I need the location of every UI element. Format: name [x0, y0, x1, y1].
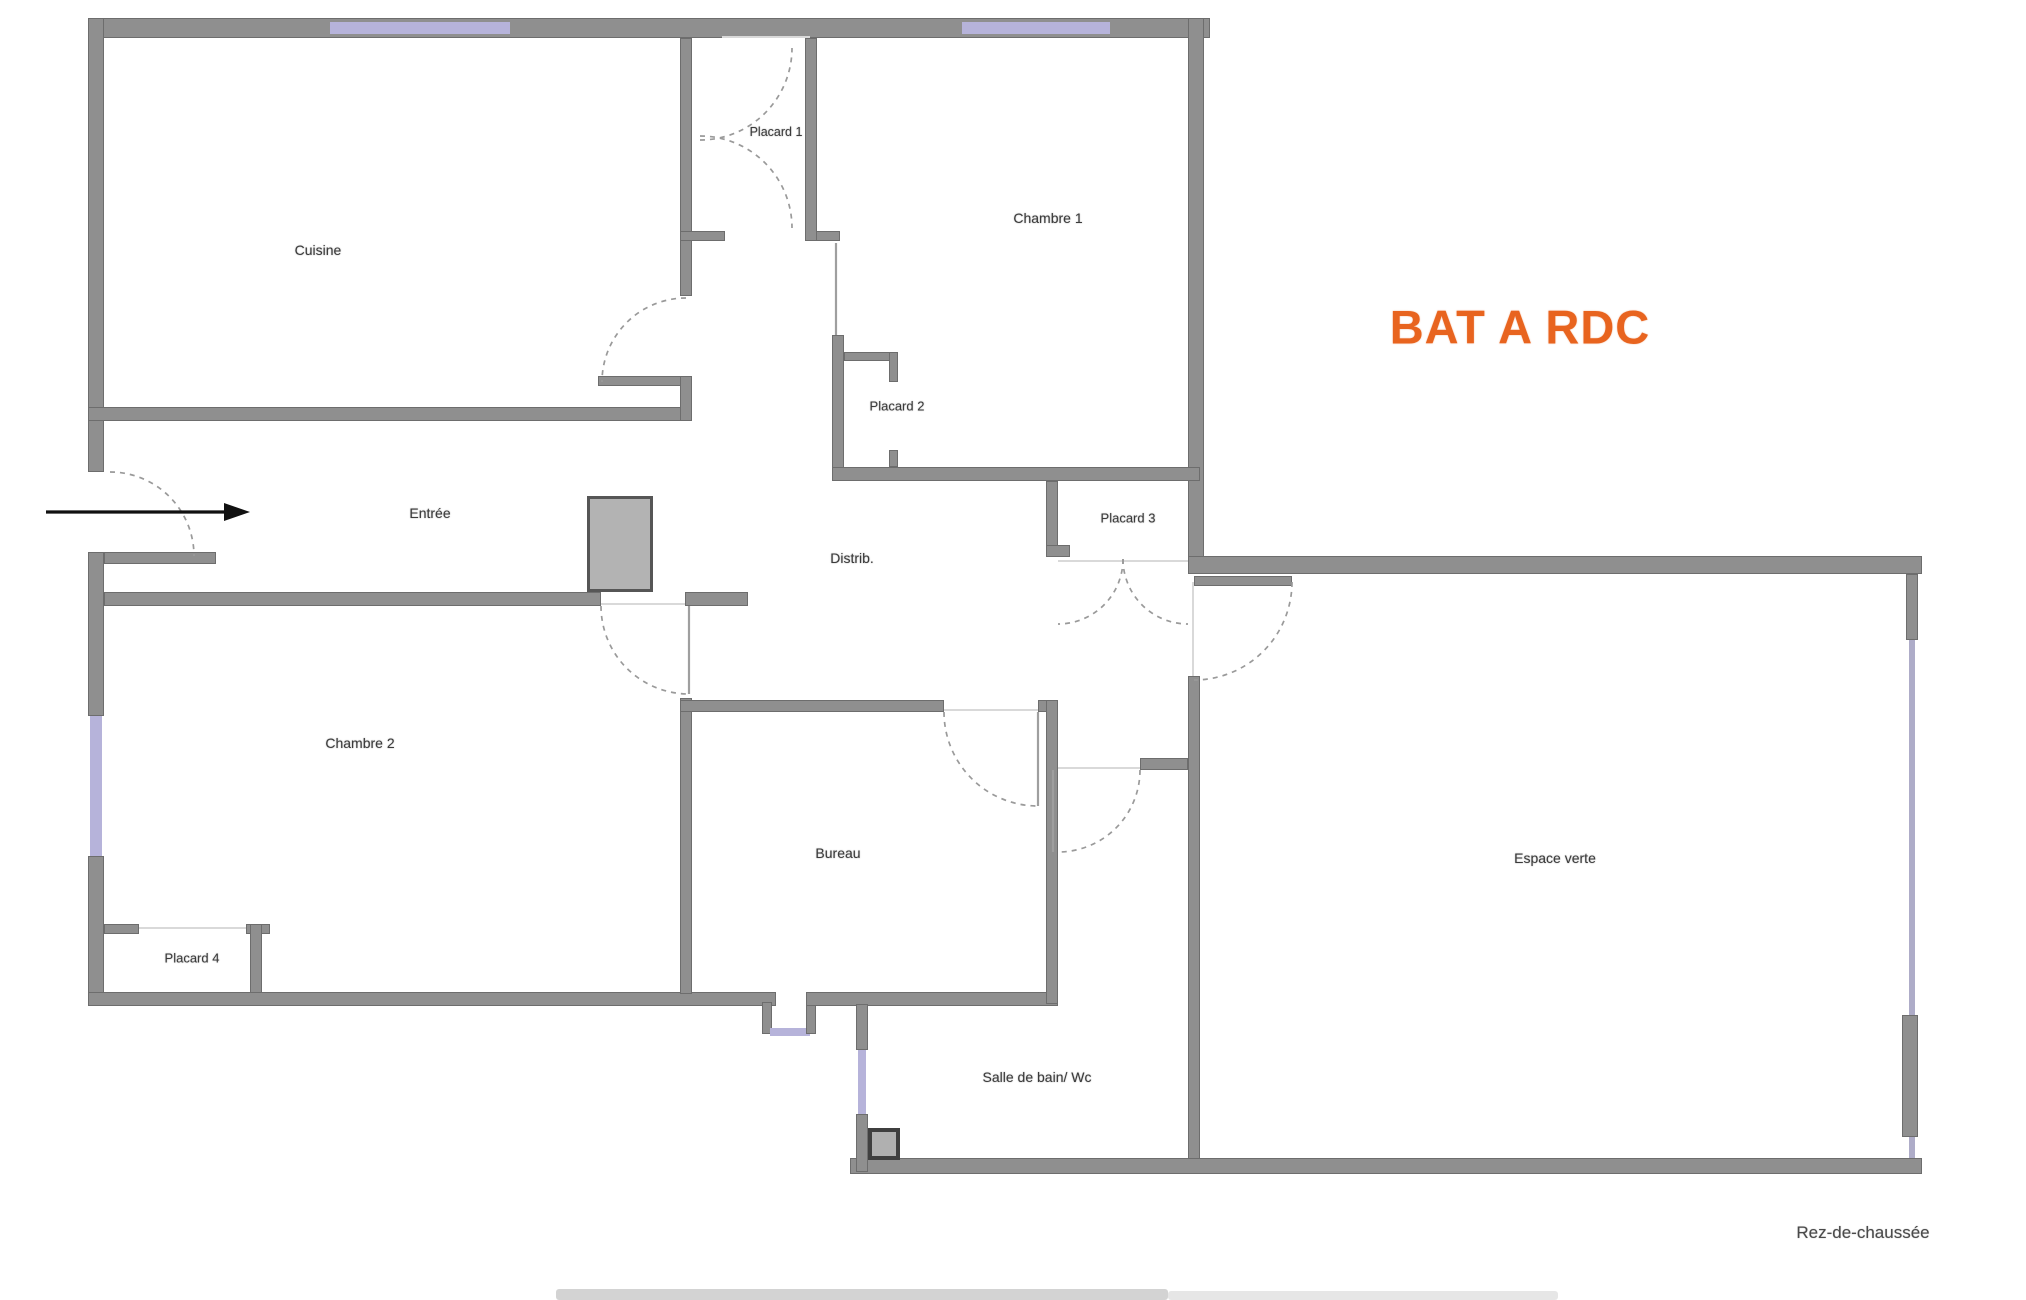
plan-footer-caption: Rez-de-chaussée [1796, 1223, 1929, 1243]
bottom-edge-artifact-dark [556, 1289, 1168, 1300]
room-label-espace-verte: Espace verte [1514, 850, 1596, 866]
room-label-placard2: Placard 2 [870, 399, 925, 414]
room-label-chambre1: Chambre 1 [1013, 210, 1082, 226]
room-label-salle-de-bain: Salle de bain/ Wc [983, 1069, 1092, 1085]
cuisine-door-arc [602, 298, 686, 382]
room-label-placard4: Placard 4 [165, 951, 220, 966]
room-label-entree: Entrée [409, 505, 450, 521]
placard1-lower-door-arc [700, 136, 792, 228]
door-swing-overlay [0, 0, 2026, 1300]
lobby-door-arc [1058, 770, 1140, 852]
room-label-chambre2: Chambre 2 [325, 735, 394, 751]
plan-title: BAT A RDC [1390, 300, 1651, 355]
bottom-edge-artifact-light [1168, 1291, 1558, 1300]
room-label-placard3: Placard 3 [1101, 511, 1156, 526]
bureau-door-arc [944, 712, 1038, 806]
chambre2-door-arc [601, 606, 689, 694]
placard3-right-door-arc [1123, 559, 1188, 624]
room-label-cuisine: Cuisine [295, 242, 342, 258]
placard3-left-door-arc [1058, 559, 1123, 624]
espace-verte-door-arc [1194, 582, 1292, 680]
floor-plan: Cuisine Placard 1 Chambre 1 Placard 2 Pl… [0, 0, 2026, 1300]
entry-door-arc [110, 472, 194, 556]
room-label-distrib: Distrib. [830, 550, 874, 566]
room-label-bureau: Bureau [815, 845, 860, 861]
room-label-placard1: Placard 1 [750, 125, 803, 139]
entry-arrow [46, 503, 250, 521]
